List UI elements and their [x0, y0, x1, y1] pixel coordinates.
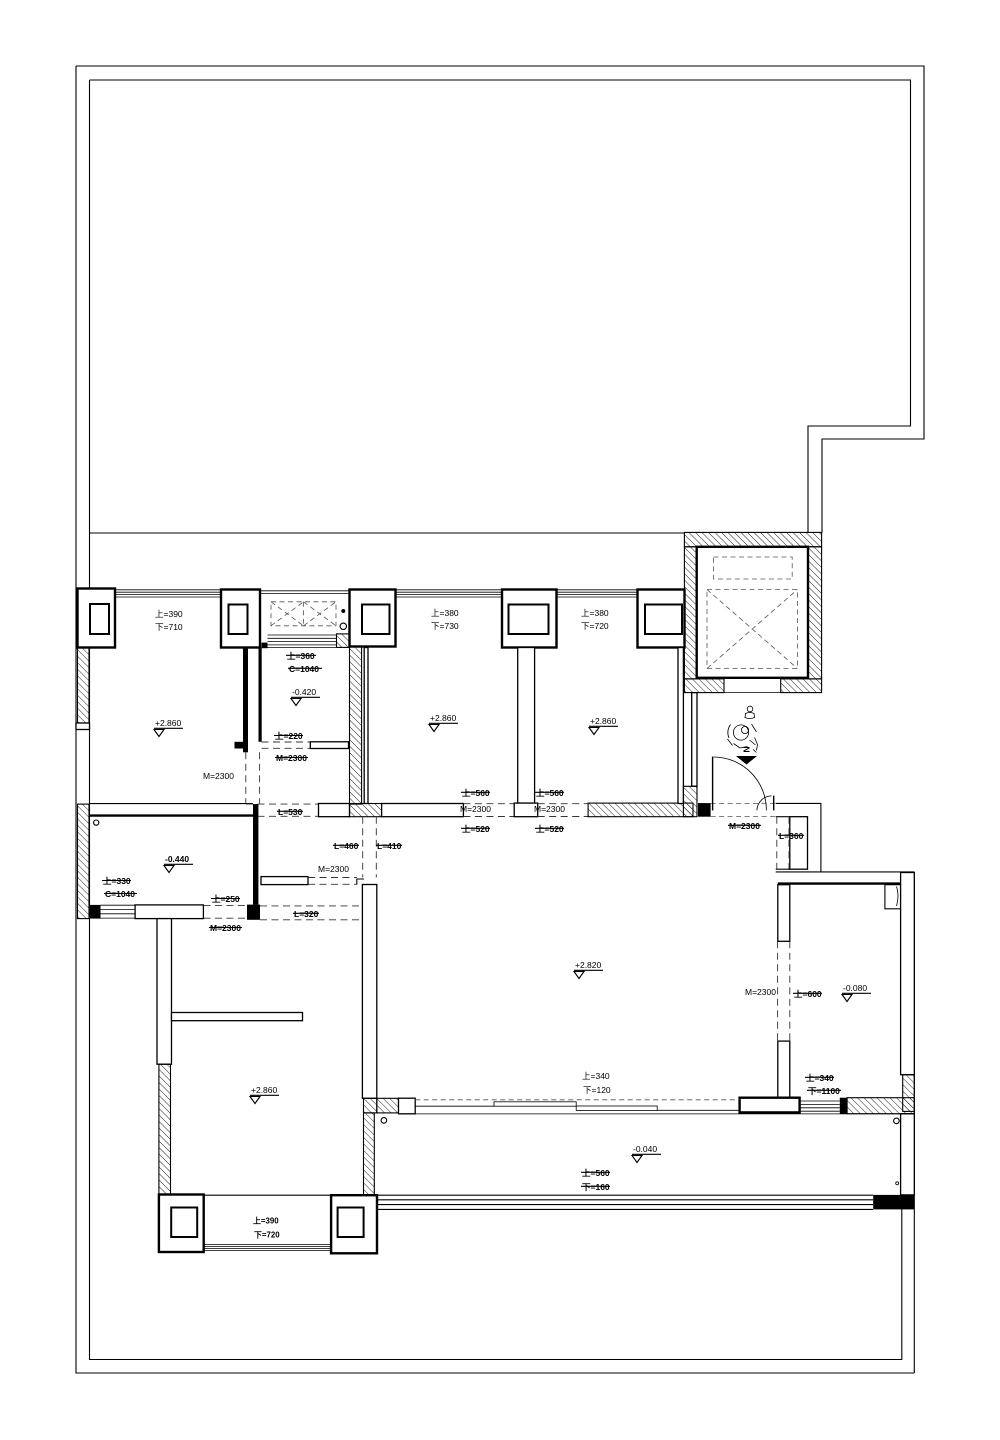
svg-text:-0.040: -0.040: [633, 1144, 657, 1154]
svg-text:M=2300: M=2300: [460, 804, 491, 814]
svg-text:M=2300: M=2300: [203, 771, 234, 781]
svg-text:+2.860: +2.860: [251, 1085, 278, 1095]
svg-text:+2.860: +2.860: [430, 713, 457, 723]
svg-text:上=340: 上=340: [582, 1071, 610, 1081]
svg-text:C=1040: C=1040: [289, 664, 319, 674]
svg-text:-0.420: -0.420: [292, 687, 316, 697]
svg-text:上=560: 上=560: [536, 788, 564, 798]
svg-text:下=720: 下=720: [254, 1231, 280, 1240]
svg-text:L=360: L=360: [779, 831, 804, 841]
svg-text:L=460: L=460: [334, 841, 359, 851]
svg-text:M=2300: M=2300: [534, 804, 565, 814]
svg-text:上=560: 上=560: [582, 1168, 610, 1178]
svg-text:上=390: 上=390: [155, 609, 183, 619]
svg-text:M=2300: M=2300: [729, 821, 760, 831]
svg-text:+2.860: +2.860: [590, 716, 617, 726]
svg-text:M=2300: M=2300: [745, 987, 776, 997]
svg-text:上=340: 上=340: [806, 1073, 834, 1083]
svg-text:N: N: [742, 746, 752, 752]
svg-text:L=320: L=320: [294, 909, 319, 919]
svg-text:L=530: L=530: [278, 807, 303, 817]
svg-text:下=160: 下=160: [582, 1182, 610, 1192]
svg-text:上=380: 上=380: [431, 608, 459, 618]
svg-text:+2.860: +2.860: [155, 718, 182, 728]
svg-text:下=120: 下=120: [583, 1085, 611, 1095]
svg-text:-0.080: -0.080: [843, 983, 867, 993]
svg-text:下=720: 下=720: [581, 621, 609, 631]
svg-text:上=520: 上=520: [462, 824, 490, 834]
svg-text:下=710: 下=710: [155, 622, 183, 632]
svg-text:下=1100: 下=1100: [808, 1086, 840, 1096]
svg-text:L=410: L=410: [377, 841, 402, 851]
svg-text:+2.820: +2.820: [575, 960, 602, 970]
svg-text:M=2300: M=2300: [318, 864, 349, 874]
svg-text:上=520: 上=520: [536, 824, 564, 834]
svg-text:上=380: 上=380: [581, 608, 609, 618]
svg-text:下=730: 下=730: [431, 621, 459, 631]
svg-text:上=360: 上=360: [287, 651, 315, 661]
svg-text:上=390: 上=390: [253, 1216, 279, 1226]
svg-text:上=600: 上=600: [794, 989, 822, 999]
svg-text:-0.440: -0.440: [165, 854, 189, 864]
svg-text:上=560: 上=560: [462, 788, 490, 798]
